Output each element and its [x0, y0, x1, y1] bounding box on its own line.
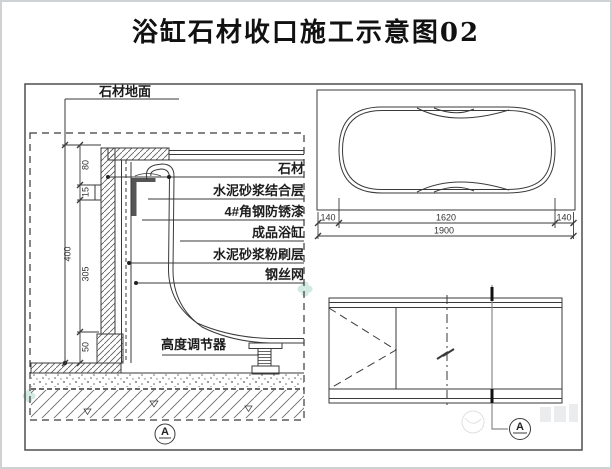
- apron-access-mark: [329, 308, 396, 389]
- label-mortar-plaster-layer: 水泥砂浆粉刷层: [182, 248, 304, 262]
- label-steel-wire-mesh: 钢丝网: [182, 268, 304, 282]
- label-stone-floor: 石材地面: [99, 85, 151, 99]
- plan-dim-140-right: 140: [556, 214, 571, 223]
- dim-total-400: 400: [64, 246, 73, 261]
- label-height-adjuster: 高度调节器: [161, 338, 226, 352]
- schematic-linework: [2, 2, 612, 469]
- break-symbol: [437, 349, 454, 359]
- label-stone: 石材: [182, 162, 304, 176]
- tub-grip-bottom: [417, 182, 509, 192]
- drawing-sheet: 浴缸石材收口施工示意图02 石材地面 石材 水泥砂浆结合层 4#角钢防锈漆 成品…: [0, 0, 612, 469]
- plan-dim-1900: 1900: [434, 227, 454, 236]
- stone-cap: [108, 148, 169, 160]
- section-marker-a-left: A: [161, 426, 169, 438]
- wall-step: [97, 334, 123, 363]
- plan-bathtub-outline: [339, 107, 555, 193]
- label-finished-bathtub: 成品浴缸: [182, 226, 304, 240]
- stone-deck-lines: [169, 151, 304, 161]
- ground-hatch: [31, 390, 304, 418]
- stone-floor-slab: [31, 363, 121, 373]
- side-view-drawing: [329, 285, 562, 440]
- label-angle-steel-paint: 4#角钢防锈漆: [182, 205, 304, 219]
- section-cut-line: [492, 285, 508, 429]
- plan-box: [317, 90, 575, 210]
- wall-notch: [95, 185, 101, 200]
- label-mortar-bonding-layer: 水泥砂浆结合层: [182, 184, 304, 198]
- dim-15: 15: [82, 187, 91, 197]
- page-title: 浴缸石材收口施工示意图02: [2, 12, 610, 49]
- dim-305: 305: [82, 266, 91, 281]
- dim-50: 50: [82, 342, 91, 352]
- ground-layers: [31, 373, 304, 418]
- dim-80: 80: [82, 160, 91, 170]
- height-adjuster-foot: [249, 343, 282, 374]
- side-view-box: [329, 298, 562, 403]
- plan-dim-140-left: 140: [320, 214, 335, 223]
- angle-steel: [132, 178, 156, 216]
- section-marker-a-right: A: [516, 421, 524, 433]
- tub-grip-top: [417, 108, 509, 118]
- plan-dim-1620: 1620: [436, 214, 456, 223]
